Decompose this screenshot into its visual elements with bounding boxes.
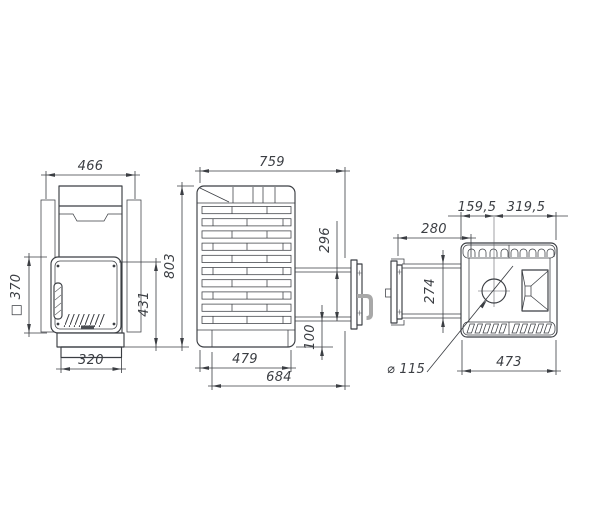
- dim-chimney-offset-front-label: 159,5: [458, 200, 497, 215]
- dim-overall-width-label: 466: [78, 159, 104, 174]
- stove-base-band: [57, 333, 124, 347]
- door-screw: [57, 265, 60, 268]
- stove-body-side: [197, 186, 295, 347]
- dim-overall-height: 803: [163, 182, 194, 351]
- latch: [386, 289, 392, 297]
- dim-tunnel-bottom-offset-label: 100: [303, 324, 318, 350]
- view-top: 159,5 319,5 280 274 473 ⌀ 115: [386, 200, 569, 377]
- stove-top-cap: [59, 186, 122, 206]
- dim-tunnel-width: 274: [423, 250, 445, 333]
- view-front: 466 □ 370 431 320: [9, 159, 189, 373]
- ash-lip: [81, 326, 94, 330]
- dim-chimney-offset-back-label: 319,5: [507, 200, 546, 215]
- dim-body-width-top: 473: [457, 340, 561, 375]
- dim-body-width-top-label: 473: [496, 355, 522, 370]
- stone-tray-contour: [59, 214, 122, 221]
- dim-firebox-opening-label: □ 370: [9, 274, 24, 317]
- dim-tunnel-height-label: 296: [318, 227, 333, 253]
- door-screw: [113, 323, 116, 326]
- dim-chimney-offsets: 159,5 319,5: [448, 200, 568, 240]
- dim-tunnel-bottom-offset: 100: [296, 305, 333, 360]
- dim-base-width: 320: [56, 349, 126, 373]
- dim-door-height: 431: [119, 258, 189, 351]
- door-handle: [54, 283, 62, 319]
- dim-door-height-label: 431: [137, 291, 152, 317]
- view-side: 759 803 296 100 479: [163, 155, 371, 390]
- dim-tunnel-length-label: 280: [421, 222, 447, 237]
- door-screw: [57, 323, 60, 326]
- vent-grille: [63, 314, 107, 327]
- dim-base-width-label: 320: [78, 353, 104, 368]
- dim-tunnel-width-label: 274: [423, 278, 438, 304]
- door-flange-top: [386, 259, 405, 325]
- dim-tunnel-height: 296: [318, 221, 339, 321]
- technical-drawing-page: 466 □ 370 431 320: [0, 0, 600, 529]
- dim-depth-to-frame-label: 684: [266, 370, 292, 385]
- stove-dimension-drawing: 466 □ 370 431 320: [0, 0, 600, 529]
- dim-body-depth: 479: [195, 350, 296, 372]
- dim-chimney-diameter-label: ⌀ 115: [387, 362, 425, 377]
- dim-overall-depth-label: 759: [259, 155, 285, 170]
- dim-overall-height-label: 803: [163, 253, 178, 279]
- door-screw: [113, 265, 116, 268]
- dim-body-depth-label: 479: [232, 352, 258, 367]
